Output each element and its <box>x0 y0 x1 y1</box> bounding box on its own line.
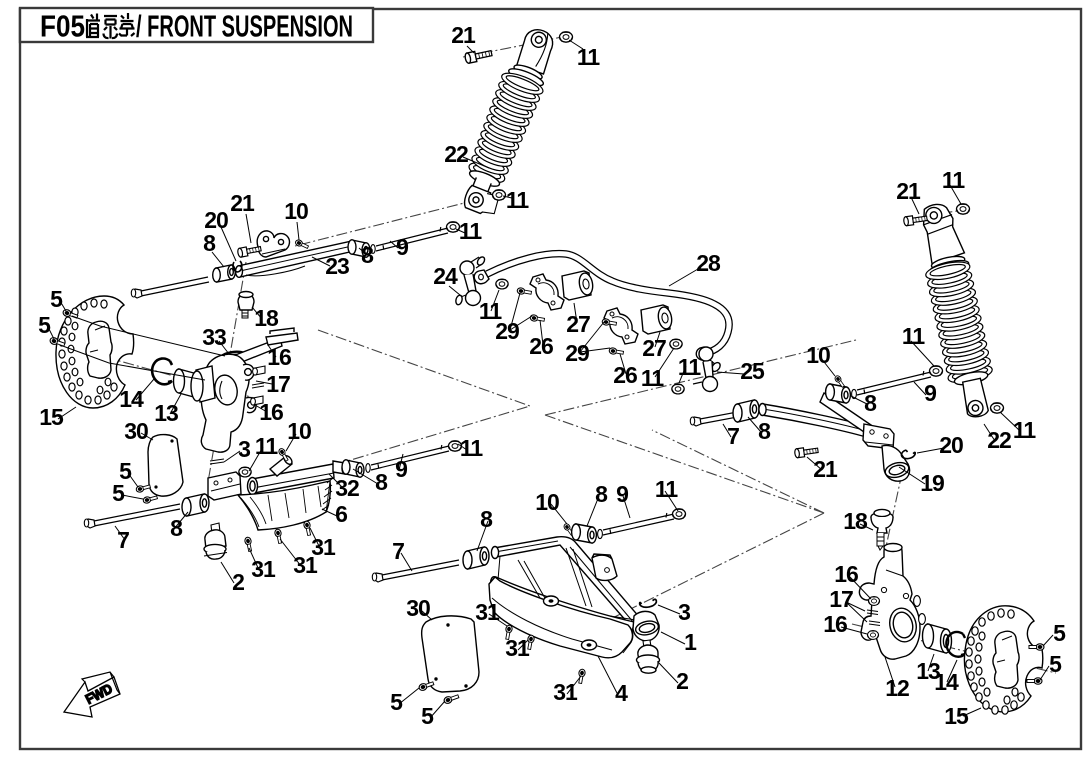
svg-text:11: 11 <box>577 44 601 70</box>
svg-text:23: 23 <box>325 253 349 279</box>
svg-text:5: 5 <box>390 689 403 715</box>
svg-text:5: 5 <box>1053 620 1066 646</box>
svg-text:15: 15 <box>39 404 64 430</box>
svg-text:21: 21 <box>230 190 255 216</box>
svg-text:11: 11 <box>1013 417 1037 443</box>
svg-text:21: 21 <box>813 456 838 482</box>
svg-text:2: 2 <box>676 668 688 694</box>
svg-text:16: 16 <box>834 561 858 587</box>
svg-text:8: 8 <box>758 418 771 444</box>
svg-text:31: 31 <box>475 599 500 625</box>
svg-text:17: 17 <box>266 371 290 397</box>
svg-text:8: 8 <box>480 506 493 532</box>
svg-text:8: 8 <box>361 242 374 268</box>
svg-text:10: 10 <box>535 489 559 515</box>
svg-text:8: 8 <box>203 230 216 256</box>
svg-text:13: 13 <box>154 400 178 426</box>
svg-text:16: 16 <box>267 344 291 370</box>
svg-text:5: 5 <box>421 703 434 729</box>
svg-text:27: 27 <box>642 335 666 361</box>
svg-text:9: 9 <box>395 456 407 482</box>
svg-text:30: 30 <box>124 418 148 444</box>
svg-text:16: 16 <box>259 399 283 425</box>
svg-text:3: 3 <box>238 436 250 462</box>
svg-text:17: 17 <box>829 586 853 612</box>
svg-text:5: 5 <box>1049 651 1062 677</box>
svg-text:11: 11 <box>655 476 679 502</box>
svg-text:9: 9 <box>924 380 936 406</box>
svg-text:18: 18 <box>843 508 868 534</box>
svg-text:24: 24 <box>433 263 458 289</box>
svg-text:21: 21 <box>896 178 921 204</box>
svg-text:18: 18 <box>254 305 279 331</box>
svg-text:2: 2 <box>232 569 244 595</box>
svg-text:26: 26 <box>613 362 637 388</box>
svg-text:14: 14 <box>119 386 144 412</box>
svg-text:29: 29 <box>495 318 519 344</box>
svg-text:8: 8 <box>375 469 388 495</box>
svg-text:20: 20 <box>939 432 963 458</box>
svg-text:9: 9 <box>396 234 408 260</box>
svg-text:8: 8 <box>595 481 608 507</box>
svg-text:5: 5 <box>38 312 51 338</box>
svg-text:29: 29 <box>565 340 589 366</box>
svg-text:11: 11 <box>902 323 926 349</box>
svg-text:6: 6 <box>335 501 347 527</box>
svg-text:10: 10 <box>284 198 308 224</box>
svg-text:16: 16 <box>823 611 847 637</box>
svg-text:31: 31 <box>251 556 276 582</box>
svg-text:11: 11 <box>678 354 702 380</box>
svg-text:F05: F05 <box>40 9 85 44</box>
svg-text:/ FRONT SUSPENSION: / FRONT SUSPENSION <box>136 9 353 44</box>
svg-text:5: 5 <box>50 286 63 312</box>
svg-text:9: 9 <box>616 481 628 507</box>
svg-text:10: 10 <box>806 342 830 368</box>
svg-text:21: 21 <box>451 22 476 48</box>
svg-text:28: 28 <box>696 250 721 276</box>
svg-text:22: 22 <box>987 427 1011 453</box>
svg-text:11: 11 <box>460 435 484 461</box>
svg-text:10: 10 <box>287 418 311 444</box>
svg-text:26: 26 <box>529 333 553 359</box>
svg-text:31: 31 <box>553 679 578 705</box>
svg-text:22: 22 <box>444 141 468 167</box>
svg-text:32: 32 <box>335 475 359 501</box>
svg-text:14: 14 <box>934 669 959 695</box>
svg-text:7: 7 <box>727 423 739 449</box>
svg-text:11: 11 <box>506 187 530 213</box>
svg-text:31: 31 <box>505 635 530 661</box>
svg-text:12: 12 <box>885 675 909 701</box>
svg-text:11: 11 <box>459 218 483 244</box>
svg-text:27: 27 <box>566 311 590 337</box>
svg-text:15: 15 <box>944 703 969 729</box>
svg-text:25: 25 <box>740 358 765 384</box>
svg-text:4: 4 <box>615 680 628 706</box>
svg-text:11: 11 <box>641 365 665 391</box>
svg-text:11: 11 <box>942 167 966 193</box>
svg-text:7: 7 <box>392 538 404 564</box>
svg-text:30: 30 <box>406 595 430 621</box>
svg-text:1: 1 <box>684 629 697 655</box>
svg-text:3: 3 <box>678 599 690 625</box>
svg-text:7: 7 <box>117 527 129 553</box>
svg-text:5: 5 <box>112 480 125 506</box>
svg-text:33: 33 <box>202 324 226 350</box>
svg-text:11: 11 <box>255 433 279 459</box>
svg-text:31: 31 <box>311 534 336 560</box>
svg-text:8: 8 <box>170 515 183 541</box>
svg-text:19: 19 <box>920 470 944 496</box>
svg-text:8: 8 <box>864 390 877 416</box>
